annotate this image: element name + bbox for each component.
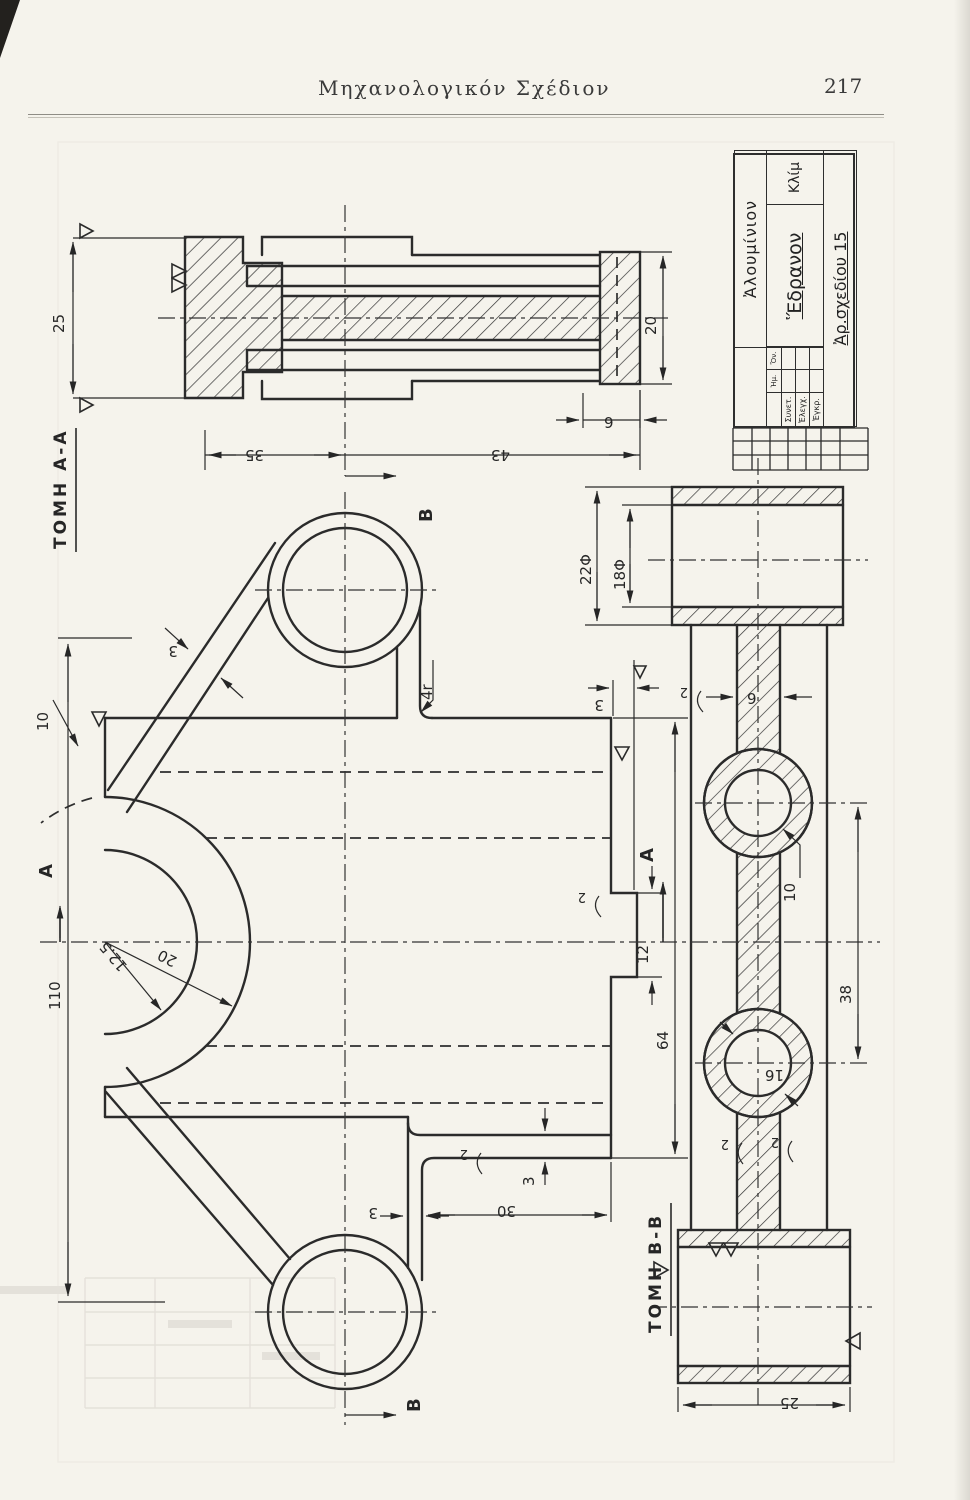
dim-16: 16 bbox=[765, 1066, 784, 1084]
main-view bbox=[105, 513, 637, 1389]
title-block-drawing-number: Ἀρ.σχεδίου 15 bbox=[823, 150, 857, 427]
finish-triangle-icon bbox=[615, 747, 629, 760]
dim-30: 30 bbox=[497, 1202, 516, 1220]
dim-3-step: 3 bbox=[594, 696, 604, 714]
sign-cell bbox=[795, 369, 810, 393]
sign-row-checked: Ἐλεγχ. bbox=[795, 392, 810, 427]
title-block-empty-cell bbox=[734, 347, 767, 427]
dim-64: 64 bbox=[654, 1031, 672, 1050]
dim-r20: 20 bbox=[155, 946, 180, 971]
section-arrow-a-left: A bbox=[36, 864, 57, 878]
dim-12: 12 bbox=[634, 945, 652, 964]
section-b-label: ΤΟΜΗ Β-Β bbox=[646, 1213, 666, 1333]
sign-row-approved: Ἐγκρ. bbox=[809, 392, 824, 427]
fillet-2-d: 2 bbox=[771, 1134, 779, 1149]
dim-22phi: 22Φ bbox=[577, 554, 595, 585]
sign-row-drawn: Συνετ. bbox=[781, 392, 796, 427]
dim-3-wall: 3 bbox=[368, 1204, 378, 1222]
book-page-scan: Μηχανολογικόν Σχέδιον 217 bbox=[0, 0, 970, 1500]
title-block-material: Ἀλουμίνιον bbox=[734, 150, 767, 348]
dim-20: 20 bbox=[642, 316, 660, 335]
title-block-part-name: Ἕδρανον bbox=[766, 204, 824, 348]
sign-cell bbox=[795, 346, 810, 370]
fillet-2-c: 2 bbox=[721, 1136, 729, 1151]
dim-43: 43 bbox=[491, 446, 510, 464]
finish-triangle-icon bbox=[634, 666, 646, 678]
section-arrow-b-bottom: B bbox=[404, 1398, 425, 1412]
dim-9-bb: 9 bbox=[747, 690, 757, 708]
sign-grid-date-header: Ἡμ. bbox=[766, 369, 782, 393]
dim-r12-5: 12.5 bbox=[96, 938, 131, 975]
sign-grid-name-header: Ὄν. bbox=[766, 346, 782, 370]
dim-35: 35 bbox=[245, 446, 264, 464]
title-block: Ἀλουμίνιον Ἕδρανον Κλίμ Ἀρ.σχεδίου 15 Ἡμ… bbox=[733, 153, 855, 428]
dim-9-top: 9 bbox=[604, 414, 614, 432]
sign-cell bbox=[809, 346, 824, 370]
section-arrow-b-top: B bbox=[416, 508, 437, 522]
dim-10-bb: 10 bbox=[781, 883, 799, 902]
hidden-lines bbox=[41, 257, 617, 1103]
dim-25: 25 bbox=[50, 314, 68, 333]
finish-triangle-icon bbox=[846, 1333, 860, 1349]
dim-4r: 4r bbox=[418, 683, 436, 700]
section-arrow-a-right: A bbox=[637, 848, 658, 862]
sign-cell bbox=[781, 369, 796, 393]
fillet-2-e: 2 bbox=[460, 1146, 468, 1161]
dim-38: 38 bbox=[837, 985, 855, 1004]
sign-cell bbox=[809, 369, 824, 393]
dim-10-left: 10 bbox=[34, 712, 52, 731]
dim-25-bb: 25 bbox=[780, 1394, 799, 1412]
fillet-2-a: 2 bbox=[680, 684, 688, 699]
dim-110: 110 bbox=[46, 981, 64, 1010]
sign-grid-blank bbox=[766, 392, 782, 427]
dim-18phi: 18Φ bbox=[611, 559, 629, 590]
fillet-2-b: 2 bbox=[578, 889, 586, 904]
sign-cell bbox=[781, 346, 796, 370]
title-block-scale: Κλίμ bbox=[766, 150, 824, 205]
dim-3-lip: 3 bbox=[520, 1176, 538, 1186]
finish-triangle-icon bbox=[80, 224, 93, 238]
finish-triangle-icon bbox=[80, 398, 93, 412]
section-a-label: ΤΟΜΗ Α-Α bbox=[51, 429, 71, 549]
dim-3-rib: 3 bbox=[168, 642, 178, 660]
